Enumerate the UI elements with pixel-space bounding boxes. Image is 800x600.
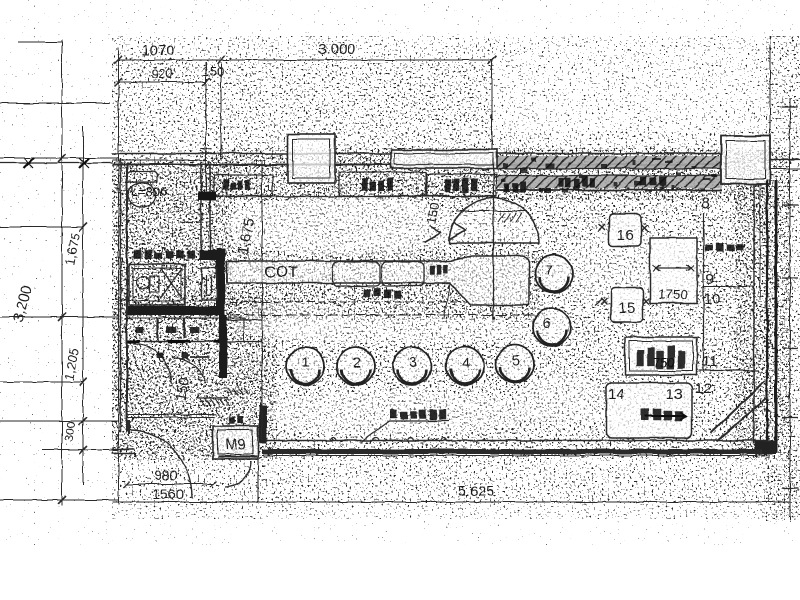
svg-text:9: 9 (706, 271, 714, 288)
svg-text:6: 6 (543, 315, 551, 331)
svg-text:5.625: 5.625 (458, 483, 493, 499)
svg-text:1070: 1070 (141, 42, 174, 59)
svg-text:920: 920 (151, 66, 173, 81)
svg-text:750: 750 (653, 355, 675, 370)
svg-text:10: 10 (704, 291, 721, 308)
svg-text:1: 1 (302, 354, 310, 370)
svg-text:16: 16 (617, 227, 634, 244)
svg-text:2: 2 (353, 354, 361, 370)
svg-text:14: 14 (608, 386, 625, 403)
svg-text:3.000: 3.000 (318, 41, 356, 58)
svg-text:8: 8 (702, 195, 711, 212)
svg-text:1750: 1750 (659, 287, 688, 302)
svg-text:980: 980 (154, 467, 178, 483)
svg-text:M9: M9 (225, 436, 246, 453)
svg-text:7: 7 (545, 262, 553, 278)
svg-text:1560: 1560 (152, 486, 183, 502)
svg-text:5: 5 (512, 352, 520, 368)
svg-text:12: 12 (695, 380, 712, 397)
svg-text:13: 13 (666, 386, 683, 403)
svg-text:L=806: L=806 (131, 184, 168, 199)
svg-text:11: 11 (702, 353, 718, 370)
svg-text:3: 3 (409, 354, 417, 370)
svg-text:15: 15 (619, 300, 636, 317)
svg-text:COT: COT (264, 264, 298, 281)
svg-text:4: 4 (462, 354, 470, 370)
